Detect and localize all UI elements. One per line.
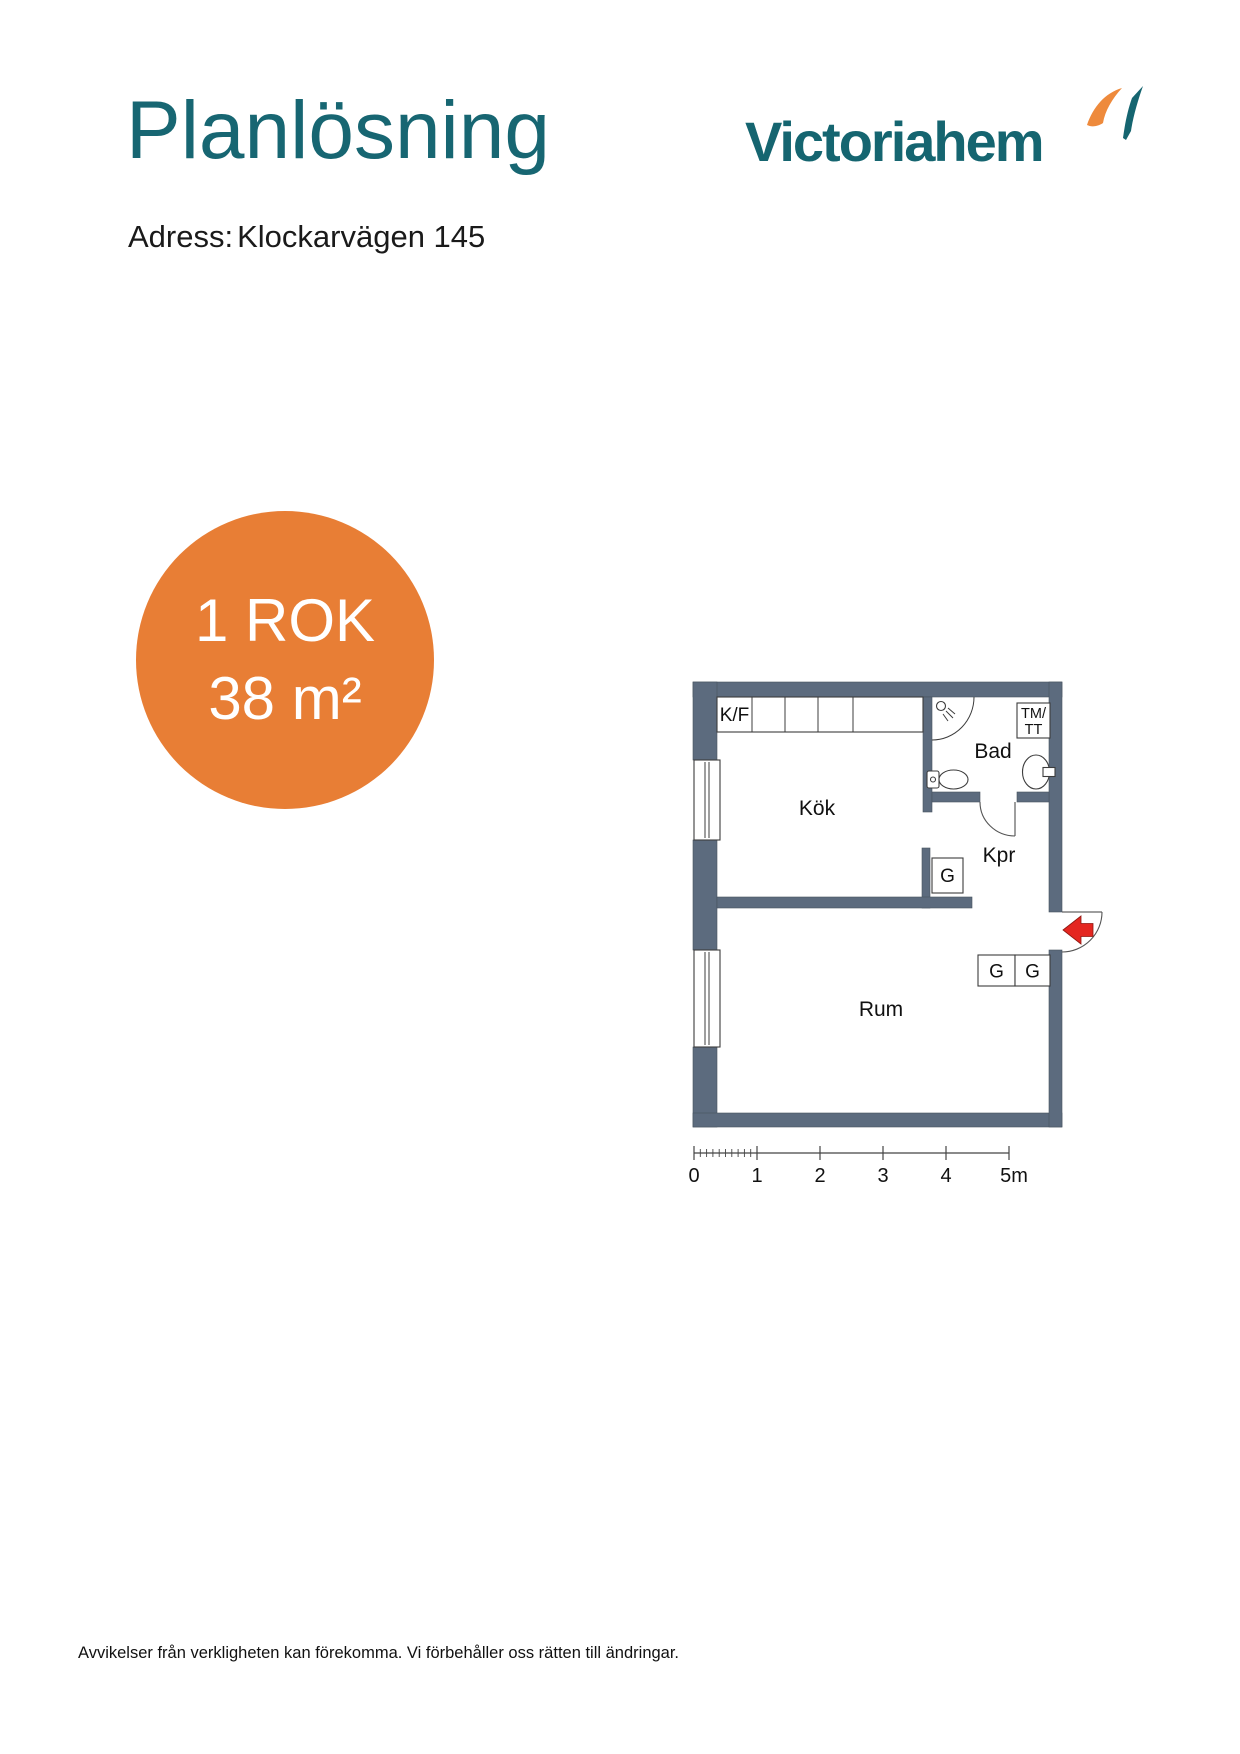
- wall-top: [693, 682, 1062, 697]
- wardrobe-hall: G: [932, 858, 963, 893]
- kitchen-label: Kök: [799, 797, 836, 820]
- room-label: Rum: [859, 998, 903, 1021]
- window-kitchen: [694, 760, 720, 840]
- wardrobe-room-1: G: [978, 955, 1015, 986]
- area-badge: 1 ROK 38 m²: [136, 511, 434, 809]
- checkmark-orange-swoosh: [1087, 88, 1122, 126]
- floor-plan: K/F TM/ TT G G G: [660, 670, 1160, 1200]
- shower: [932, 697, 974, 740]
- wall-bathroom-bottom-left: [932, 792, 980, 802]
- wall-bathroom-left: [923, 697, 932, 812]
- wall-left-upper: [693, 682, 717, 760]
- wall-bathroom-bottom-right: [1017, 792, 1049, 802]
- scale-bar: 0 1 2 3 4 5m: [688, 1146, 1027, 1187]
- hall-label: Kpr: [983, 844, 1016, 867]
- wall-right-lower: [1049, 950, 1062, 1127]
- scale-label-2: 2: [814, 1165, 825, 1187]
- area-badge-rooms: 1 ROK: [195, 582, 375, 660]
- washer-dryer-label-line2: TT: [1025, 722, 1043, 738]
- brand-checkmark-icon: [1085, 86, 1143, 140]
- toilet: [927, 770, 968, 789]
- kitchen-counter: K/F: [717, 697, 923, 732]
- scale-label-4: 4: [940, 1165, 951, 1187]
- wall-bottom: [693, 1113, 1062, 1127]
- wall-kitchen-room-divider: [717, 897, 972, 908]
- bathroom-label: Bad: [974, 740, 1011, 763]
- washer-dryer-label-line1: TM/: [1021, 706, 1047, 722]
- wall-left-middle: [693, 840, 717, 950]
- wardrobe-hall-label: G: [940, 866, 955, 887]
- scale-label-1: 1: [751, 1165, 762, 1187]
- window-room: [694, 950, 720, 1047]
- address-value: Klockarvägen 145: [237, 219, 485, 254]
- brand-logo-text: Victoriahem: [745, 109, 1043, 174]
- scale-label-0: 0: [688, 1165, 699, 1187]
- bathroom-door: [980, 802, 1015, 836]
- wardrobe-room-2: G: [1015, 955, 1050, 986]
- area-badge-size: 38 m²: [208, 660, 361, 738]
- wardrobe-room-2-label: G: [1025, 962, 1040, 983]
- disclaimer-text: Avvikelser från verkligheten kan förekom…: [78, 1644, 679, 1663]
- washer-dryer-box: TM/ TT: [1017, 703, 1050, 738]
- fridge-freezer-label: K/F: [720, 705, 750, 726]
- address-label: Adress:: [128, 219, 233, 254]
- scale-label-3: 3: [877, 1165, 888, 1187]
- page-title: Planlösning: [126, 90, 550, 172]
- wardrobe-room-1-label: G: [989, 962, 1004, 983]
- address-line: Adress:Klockarvägen 145: [128, 219, 485, 255]
- scale-label-5m: 5m: [1000, 1165, 1028, 1187]
- shower-head-icon: [937, 702, 946, 711]
- wall-right-upper: [1049, 682, 1062, 912]
- entrance-door: [1062, 912, 1102, 952]
- checkmark-teal-stroke: [1123, 86, 1143, 140]
